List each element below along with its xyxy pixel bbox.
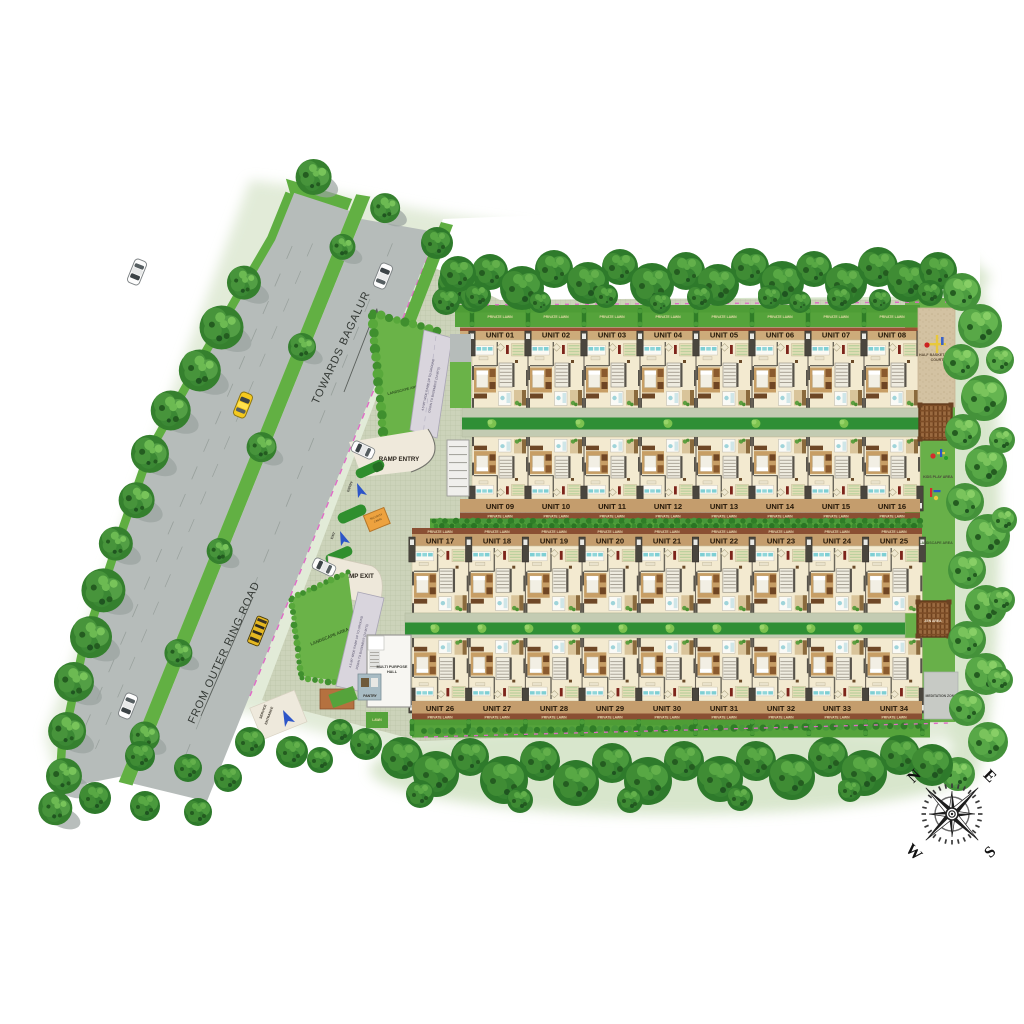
svg-text:UNIT 09: UNIT 09 [486,502,514,511]
svg-text:UNIT 16: UNIT 16 [878,502,906,511]
svg-text:UNIT 29: UNIT 29 [596,704,624,713]
svg-text:PRIVATE LAWN: PRIVATE LAWN [597,530,623,534]
svg-text:UNIT 28: UNIT 28 [540,704,568,713]
svg-text:UNIT 06: UNIT 06 [766,331,794,340]
svg-text:PRIVATE LAWN: PRIVATE LAWN [823,315,849,319]
svg-text:UNIT 25: UNIT 25 [880,537,909,546]
svg-text:UNIT 07: UNIT 07 [822,331,850,340]
svg-text:PRIVATE LAWN: PRIVATE LAWN [711,514,737,518]
svg-text:COURT: COURT [931,358,945,362]
svg-text:KIDS PLAY AREA: KIDS PLAY AREA [923,475,953,479]
svg-text:UNIT 13: UNIT 13 [710,502,738,511]
svg-text:PRIVATE LAWN: PRIVATE LAWN [768,530,794,534]
svg-text:UNIT 31: UNIT 31 [710,704,739,713]
svg-text:PRIVATE LAWN: PRIVATE LAWN [654,530,680,534]
svg-text:PRIVATE LAWN: PRIVATE LAWN [879,514,905,518]
svg-text:UNIT 24: UNIT 24 [823,537,852,546]
svg-text:RAMP ENTRY: RAMP ENTRY [379,456,420,463]
svg-text:PRIVATE LAWN: PRIVATE LAWN [487,514,513,518]
svg-text:UNIT 11: UNIT 11 [598,502,627,511]
svg-text:UNIT 12: UNIT 12 [654,502,682,511]
svg-text:PRIVATE LAWN: PRIVATE LAWN [881,715,907,719]
svg-text:UNIT 10: UNIT 10 [542,502,570,511]
svg-text:UNIT 05: UNIT 05 [710,331,739,340]
svg-text:PRIVATE LAWN: PRIVATE LAWN [711,315,737,319]
svg-text:ZEN AREA: ZEN AREA [924,619,942,623]
svg-text:UNIT 15: UNIT 15 [822,502,851,511]
svg-text:UNIT 18: UNIT 18 [483,537,511,546]
svg-text:PRIVATE LAWN: PRIVATE LAWN [599,315,625,319]
svg-text:UNIT 34: UNIT 34 [880,704,909,713]
svg-text:PRIVATE LAWN: PRIVATE LAWN [881,530,907,534]
svg-text:PRIVATE LAWN: PRIVATE LAWN [711,715,737,719]
svg-text:PRIVATE LAWN: PRIVATE LAWN [427,530,453,534]
svg-text:PRIVATE LAWN: PRIVATE LAWN [824,715,850,719]
svg-text:PRIVATE LAWN: PRIVATE LAWN [541,530,567,534]
svg-text:PRIVATE LAWN: PRIVATE LAWN [824,530,850,534]
svg-text:PRIVATE LAWN: PRIVATE LAWN [484,715,510,719]
svg-text:PRIVATE LAWN: PRIVATE LAWN [543,514,569,518]
svg-text:PRIVATE LAWN: PRIVATE LAWN [541,715,567,719]
svg-text:PRIVATE LAWN: PRIVATE LAWN [768,715,794,719]
svg-text:UNIT 32: UNIT 32 [767,704,795,713]
svg-text:UNIT 20: UNIT 20 [596,537,624,546]
svg-text:UNIT 08: UNIT 08 [878,331,906,340]
svg-text:HALL: HALL [387,670,398,674]
svg-text:W: W [902,841,925,864]
svg-text:UNIT 01: UNIT 01 [486,331,515,340]
svg-text:PRIVATE LAWN: PRIVATE LAWN [427,715,453,719]
svg-text:UNIT 21: UNIT 21 [653,537,682,546]
svg-text:PRIVATE LAWN: PRIVATE LAWN [543,315,569,319]
svg-text:PRIVATE LAWN: PRIVATE LAWN [711,530,737,534]
svg-text:UNIT 19: UNIT 19 [540,537,568,546]
svg-text:PRIVATE LAWN: PRIVATE LAWN [654,715,680,719]
svg-text:UNIT 03: UNIT 03 [598,331,626,340]
svg-text:UNIT 33: UNIT 33 [823,704,851,713]
svg-text:PRIVATE LAWN: PRIVATE LAWN [767,315,793,319]
svg-text:PRIVATE LAWN: PRIVATE LAWN [879,315,905,319]
svg-text:PRIVATE LAWN: PRIVATE LAWN [487,315,513,319]
svg-text:UNIT 02: UNIT 02 [542,331,570,340]
svg-text:UNIT 23: UNIT 23 [767,537,795,546]
svg-text:UNIT 26: UNIT 26 [426,704,454,713]
svg-text:UNIT 14: UNIT 14 [766,502,795,511]
svg-text:E: E [980,767,1000,787]
svg-text:UNIT 27: UNIT 27 [483,704,511,713]
svg-text:PANTRY: PANTRY [363,694,377,698]
svg-text:UNIT 04: UNIT 04 [654,331,683,340]
svg-text:UNIT 22: UNIT 22 [710,537,738,546]
svg-text:PRIVATE LAWN: PRIVATE LAWN [655,315,681,319]
svg-text:PRIVATE LAWN: PRIVATE LAWN [767,514,793,518]
svg-text:LAWN: LAWN [372,718,382,722]
svg-text:UNIT 17: UNIT 17 [426,537,454,546]
svg-text:S: S [981,843,999,861]
svg-text:LANDSCAPE AREA: LANDSCAPE AREA [919,541,953,545]
svg-text:MULTI PURPOSE: MULTI PURPOSE [377,665,408,669]
svg-text:UNIT 30: UNIT 30 [653,704,681,713]
svg-text:PRIVATE LAWN: PRIVATE LAWN [484,530,510,534]
svg-text:PRIVATE LAWN: PRIVATE LAWN [823,514,849,518]
svg-text:PRIVATE LAWN: PRIVATE LAWN [597,715,623,719]
